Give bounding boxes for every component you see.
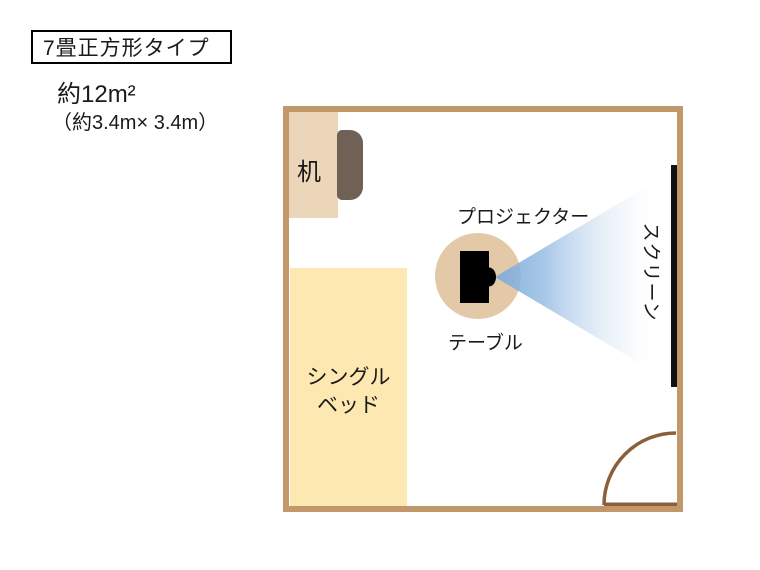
projection-screen — [671, 165, 677, 387]
door-swing-arc — [604, 433, 676, 505]
screen-label: スクリーン — [638, 212, 662, 332]
table-label: テーブル — [448, 328, 523, 355]
bed-label-line1: シングル — [290, 364, 407, 392]
desk-label: 机 — [297, 152, 321, 187]
floor-plan-canvas: 7畳正方形タイプ 約12m² （約3.4m× 3.4m） — [0, 0, 760, 570]
plan-overlay — [289, 112, 677, 506]
room-floor: 机 シングル ベッド プロジェクター テーブル スクリーン — [289, 112, 677, 506]
single-bed-label: シングル ベッド — [290, 364, 407, 420]
area-size-text: 約12m² — [57, 74, 136, 109]
bed-label-line2: ベッド — [290, 392, 407, 420]
plan-title-box: 7畳正方形タイプ — [31, 30, 232, 64]
plan-title: 7畳正方形タイプ — [43, 32, 210, 62]
projector-label: プロジェクター — [457, 202, 589, 229]
projector-lens — [482, 268, 496, 287]
area-dimensions-text: （約3.4m× 3.4m） — [52, 106, 218, 135]
room-outline: 机 シングル ベッド プロジェクター テーブル スクリーン — [283, 106, 683, 512]
